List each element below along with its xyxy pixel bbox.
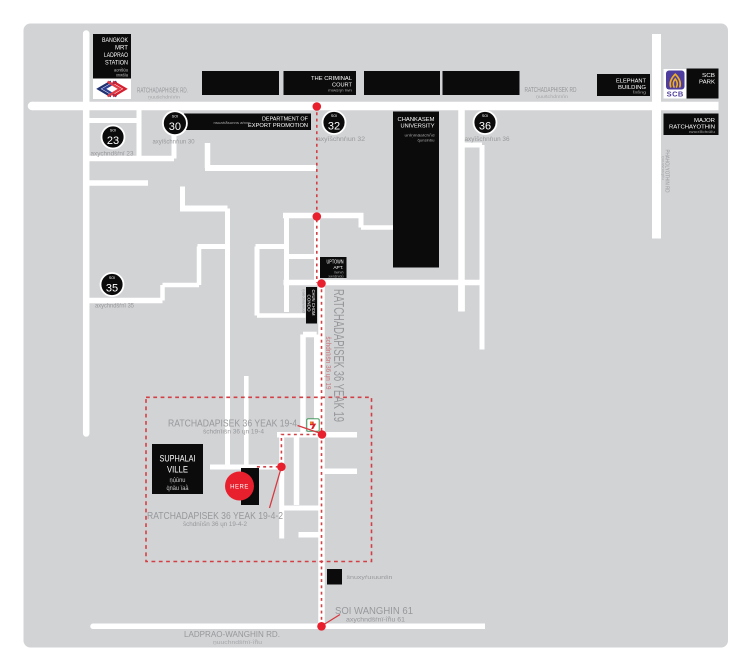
- svg-text:q̇näu ïaä̇: q̇näu ïaä̇: [167, 485, 190, 492]
- svg-text:axyīs̆chnŕıun 30: axyīs̆chnŕıun 30: [153, 138, 195, 146]
- svg-text:xnws̄ìa: xnws̄ìa: [116, 73, 128, 78]
- svg-text:SCB: SCB: [667, 90, 684, 99]
- svg-text:s̈nuxyŕuıuuns̄n: s̈nuxyŕuıuuns̄n: [347, 575, 393, 581]
- svg-text:s̆chdnīıs̄n 36 ųn 19: s̆chdnīıs̄n 36 ųn 19: [324, 337, 332, 390]
- svg-text:ṉuuwņaıyīu: ṉuuwņaıyīu: [661, 156, 665, 180]
- svg-text:STATION: STATION: [105, 61, 128, 67]
- svg-text:SOI WANGHIN 61: SOI WANGHIN 61: [335, 605, 413, 617]
- svg-text:SCB: SCB: [702, 73, 715, 79]
- svg-text:UPTOWN: UPTOWN: [327, 260, 344, 266]
- svg-text:MAJOR: MAJOR: [694, 118, 715, 124]
- svg-text:ıwıcxīīchıüīu: ıwıcxīīchıüīu: [689, 130, 715, 134]
- svg-text:CONDO: CONDO: [307, 295, 312, 312]
- svg-text:DEPARTMENT OF: DEPARTMENT OF: [262, 117, 308, 123]
- svg-text:ṉuus̆chdnīın̄n: ṉuus̆chdnīın̄n: [536, 93, 569, 99]
- svg-text:UNIVERSITY: UNIVERSITY: [401, 124, 435, 130]
- svg-text:axychnds̄ŕnï 23: axychnds̄ŕnï 23: [91, 151, 134, 158]
- svg-text:q̆unsinbu: q̆unsinbu: [417, 139, 434, 143]
- svg-text:ELEPHANT: ELEPHANT: [616, 79, 646, 85]
- svg-text:VILLE: VILLE: [167, 465, 188, 476]
- svg-text:PARK: PARK: [699, 80, 715, 86]
- svg-text:axyīs̆chnŕıun 36: axyīs̆chnŕıun 36: [465, 135, 510, 143]
- svg-text:ṉuus̆chdnīın̄n: ṉuus̆chdnīın̄n: [148, 94, 181, 100]
- svg-text:MRT: MRT: [115, 46, 128, 52]
- svg-text:LADPRAO: LADPRAO: [104, 53, 128, 59]
- svg-text:23: 23: [107, 135, 119, 147]
- svg-text:ņaúchanxud: ņaúchanxud: [302, 289, 306, 313]
- svg-text:EXPORT PROMOTION: EXPORT PROMOTION: [248, 123, 308, 129]
- svg-text:SOI: SOI: [331, 114, 337, 118]
- svg-text:HERE: HERE: [230, 485, 249, 491]
- svg-text:s̆chdnīıs̄n 36 ųn 19-4-2: s̆chdnīıs̄n 36 ųn 19-4-2: [183, 521, 248, 528]
- svg-text:THE CRIMINAL: THE CRIMINAL: [311, 76, 353, 82]
- svg-text:ņụ́ūnu: ņụ́ūnu: [170, 478, 186, 484]
- svg-text:nsuaŕıa̋sunns aŕxxn: nsuaŕıa̋sunns aŕxxn: [214, 120, 251, 125]
- svg-text:ṉuuchnds̄ŕnï-ï̇ñ̄u: ṉuuchnds̄ŕnï-ï̇ñ̄u: [213, 639, 262, 646]
- svg-text:mɩwsŋn ïwn: mɩwsŋn ïwn: [328, 88, 352, 93]
- svg-text:35: 35: [106, 283, 118, 295]
- svg-text:axychnds̄ŕnï 35: axychnds̄ŕnï 35: [95, 303, 134, 310]
- svg-text:32: 32: [328, 121, 340, 133]
- svg-text:SUPHALAI: SUPHALAI: [160, 454, 196, 465]
- svg-text:36: 36: [479, 121, 491, 133]
- svg-text:30: 30: [169, 121, 181, 133]
- svg-text:RATCHADAPISEK 36 YEAK 19: RATCHADAPISEK 36 YEAK 19: [330, 289, 347, 422]
- svg-text:SOI: SOI: [109, 276, 115, 280]
- svg-text:axychnds̄ŕnï-ï̇ñ̄u 61: axychnds̄ŕnï-ï̇ñ̄u 61: [346, 616, 406, 623]
- svg-text:SOI: SOI: [172, 115, 178, 119]
- svg-text:t̂nb̆ng: t̂nb̆ng: [632, 90, 646, 95]
- svg-text:SOI: SOI: [110, 129, 116, 133]
- svg-text:CHANKASEM: CHANKASEM: [398, 117, 435, 123]
- svg-text:BANGKOK: BANGKOK: [102, 38, 128, 44]
- svg-text:SOI: SOI: [482, 114, 488, 118]
- svg-text:RATCHADAPHISEK RD.: RATCHADAPHISEK RD.: [137, 88, 188, 95]
- svg-text:LADPRAO-WANGHIN RD.: LADPRAO-WANGHIN RD.: [184, 629, 280, 639]
- svg-text:RATCHADAPHISEK RD: RATCHADAPHISEK RD: [525, 87, 577, 94]
- svg-text:xwnṡnıūủ: xwnṡnıūủ: [328, 274, 343, 278]
- svg-text:s̆chdnīıs̄n 36 ųn 19-4: s̆chdnīıs̄n 36 ųn 19-4: [203, 429, 265, 436]
- svg-text:unï̇ņinäaīchn̆d: unï̇ņinäaīchn̆d: [405, 133, 435, 138]
- svg-text:axyīs̆chnŕıun 32: axyīs̆chnŕıun 32: [317, 135, 365, 143]
